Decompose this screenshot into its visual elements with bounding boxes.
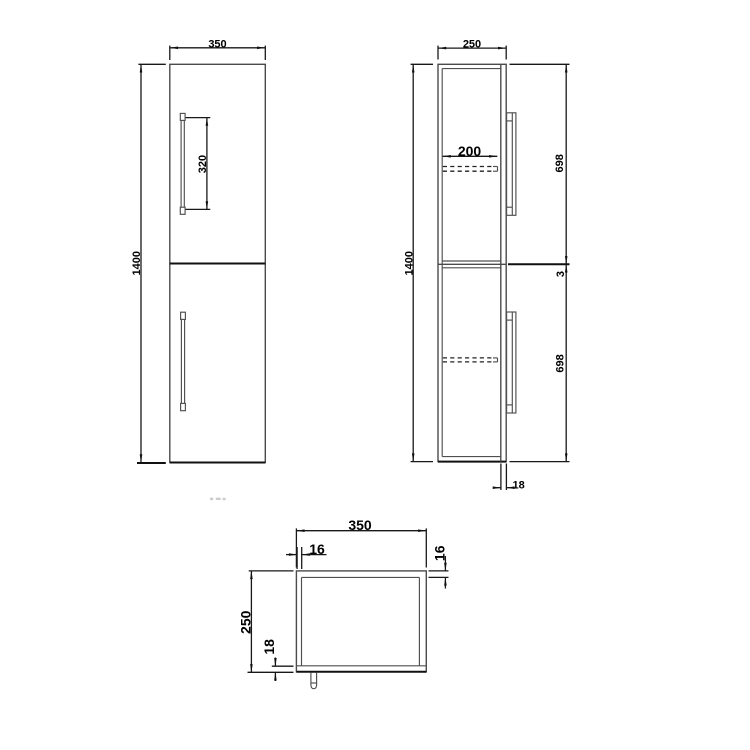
svg-text:18: 18 xyxy=(261,639,277,655)
svg-text:1400: 1400 xyxy=(131,251,143,275)
svg-text:16: 16 xyxy=(432,545,448,561)
svg-text:1400: 1400 xyxy=(403,251,415,275)
svg-text:3: 3 xyxy=(555,271,567,277)
svg-text:320: 320 xyxy=(197,155,209,173)
svg-text:698: 698 xyxy=(554,154,566,172)
svg-text:250: 250 xyxy=(463,39,481,51)
svg-text:16: 16 xyxy=(309,541,325,557)
svg-text:350: 350 xyxy=(348,517,372,533)
svg-text:18: 18 xyxy=(512,480,524,492)
svg-text:200: 200 xyxy=(458,143,482,159)
svg-text:350: 350 xyxy=(208,38,226,50)
svg-text:698: 698 xyxy=(555,354,567,372)
svg-text:250: 250 xyxy=(238,610,254,634)
